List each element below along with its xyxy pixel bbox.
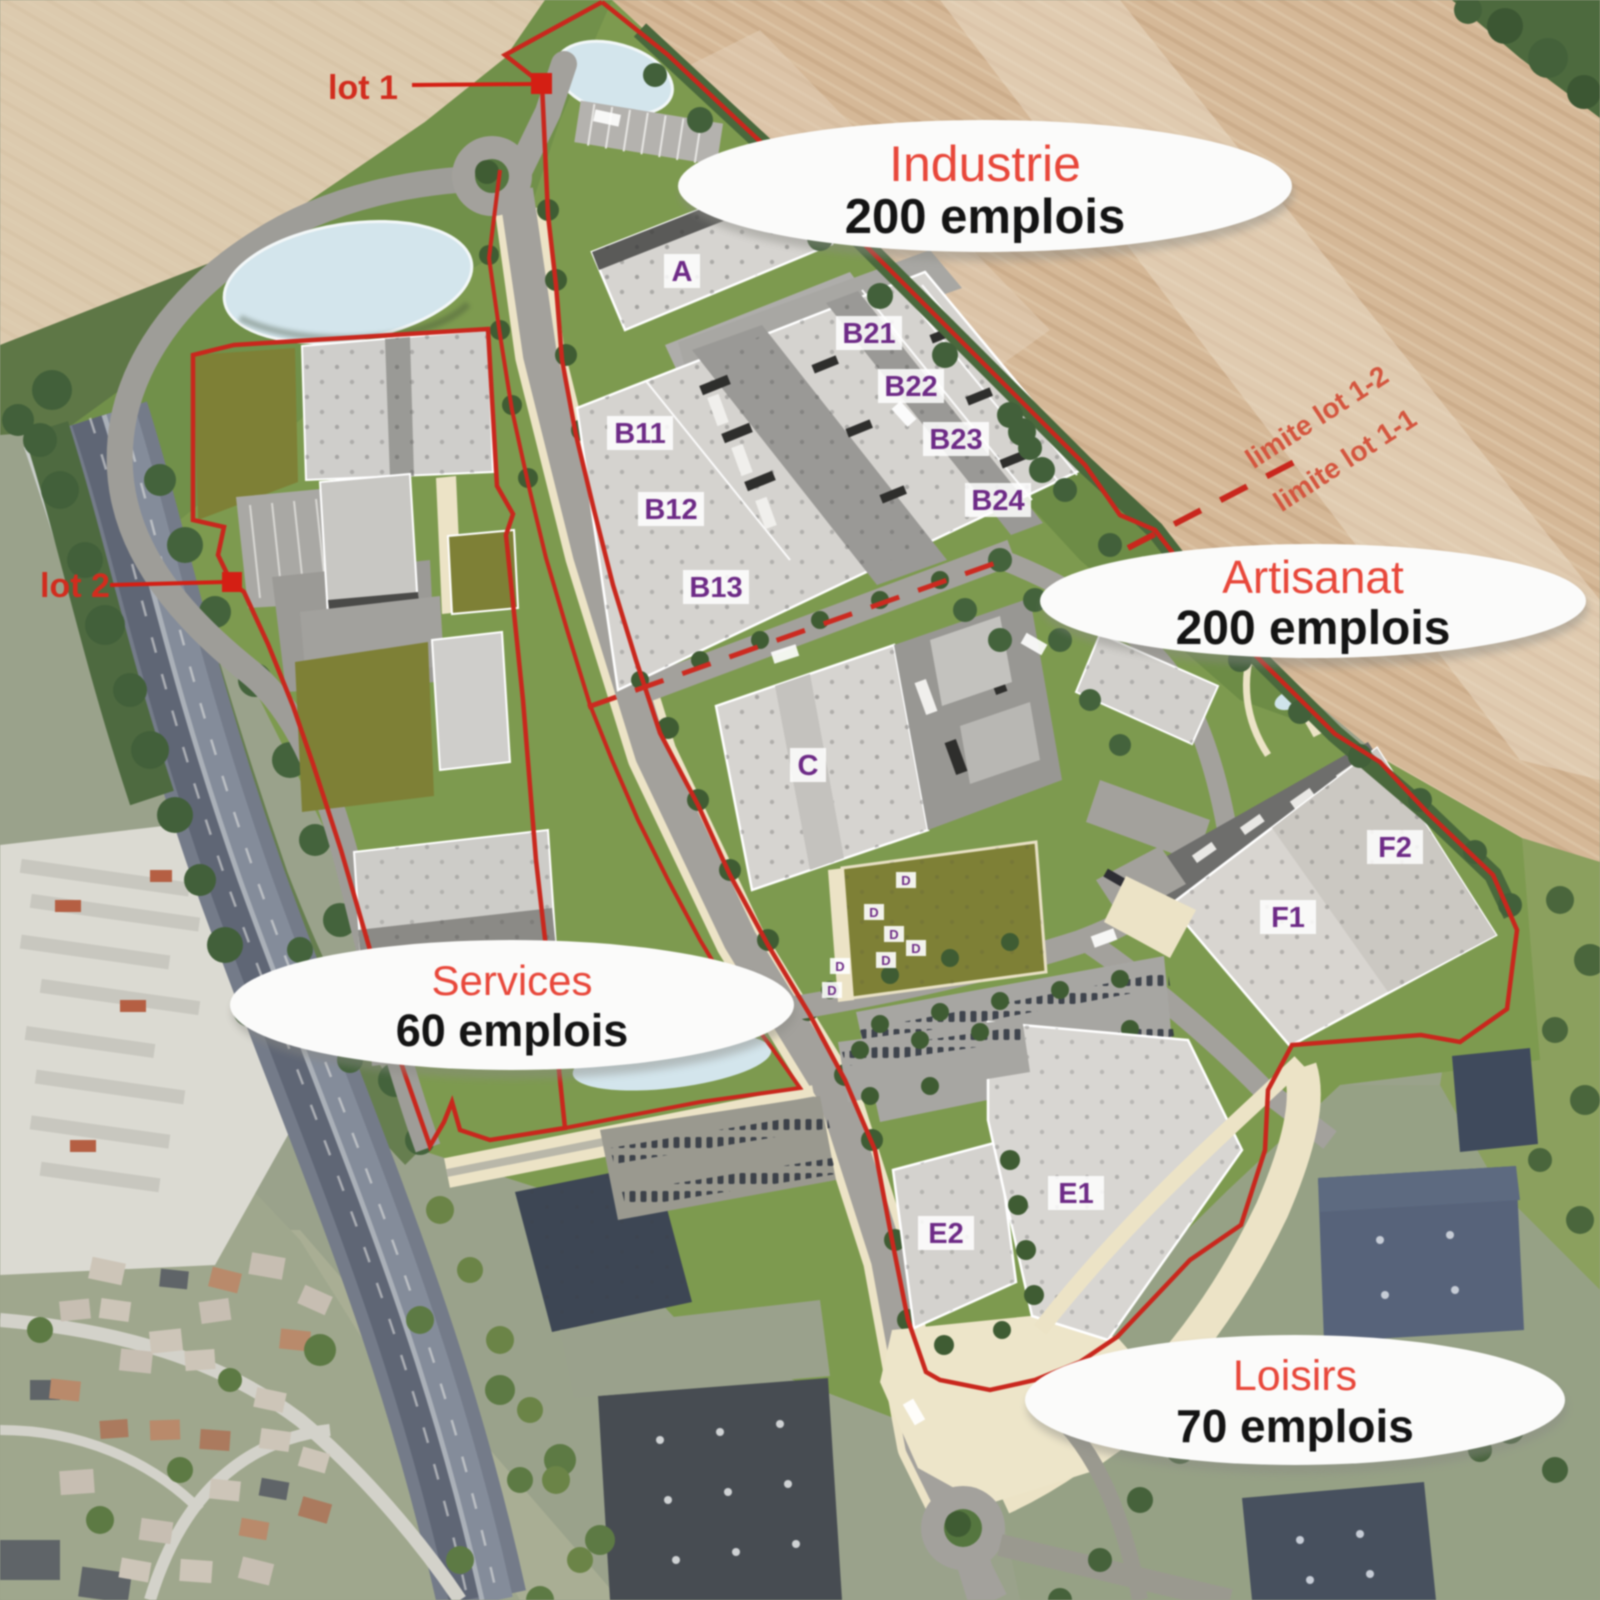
svg-text:200 emplois: 200 emplois (845, 190, 1126, 244)
svg-text:D: D (835, 959, 844, 974)
svg-text:E2: E2 (928, 1218, 963, 1250)
svg-text:D: D (881, 953, 890, 968)
svg-text:A: A (672, 256, 693, 288)
svg-text:D: D (889, 927, 898, 942)
svg-text:70 emplois: 70 emplois (1176, 1400, 1414, 1452)
svg-text:F2: F2 (1378, 832, 1412, 864)
svg-text:lot 2: lot 2 (40, 567, 110, 605)
svg-text:B11: B11 (614, 418, 666, 450)
svg-text:D: D (869, 905, 878, 920)
svg-text:B23: B23 (929, 424, 982, 456)
svg-text:D: D (911, 941, 920, 956)
svg-text:C: C (798, 750, 819, 782)
svg-text:lot 1: lot 1 (328, 69, 398, 107)
svg-text:200 emplois: 200 emplois (1176, 602, 1451, 655)
svg-text:D: D (827, 983, 836, 998)
svg-text:Services: Services (431, 957, 592, 1004)
svg-text:B22: B22 (884, 371, 937, 403)
svg-text:F1: F1 (1271, 902, 1305, 934)
svg-text:Loisirs: Loisirs (1233, 1352, 1357, 1400)
svg-text:B12: B12 (644, 494, 697, 526)
svg-text:60 emplois: 60 emplois (396, 1005, 629, 1056)
svg-text:B13: B13 (689, 572, 742, 604)
svg-text:B21: B21 (842, 318, 895, 350)
svg-text:D: D (901, 873, 910, 888)
svg-text:E1: E1 (1058, 1178, 1093, 1210)
svg-text:Artisanat: Artisanat (1222, 551, 1404, 603)
svg-text:B24: B24 (971, 485, 1024, 517)
svg-text:Industrie: Industrie (889, 136, 1081, 192)
